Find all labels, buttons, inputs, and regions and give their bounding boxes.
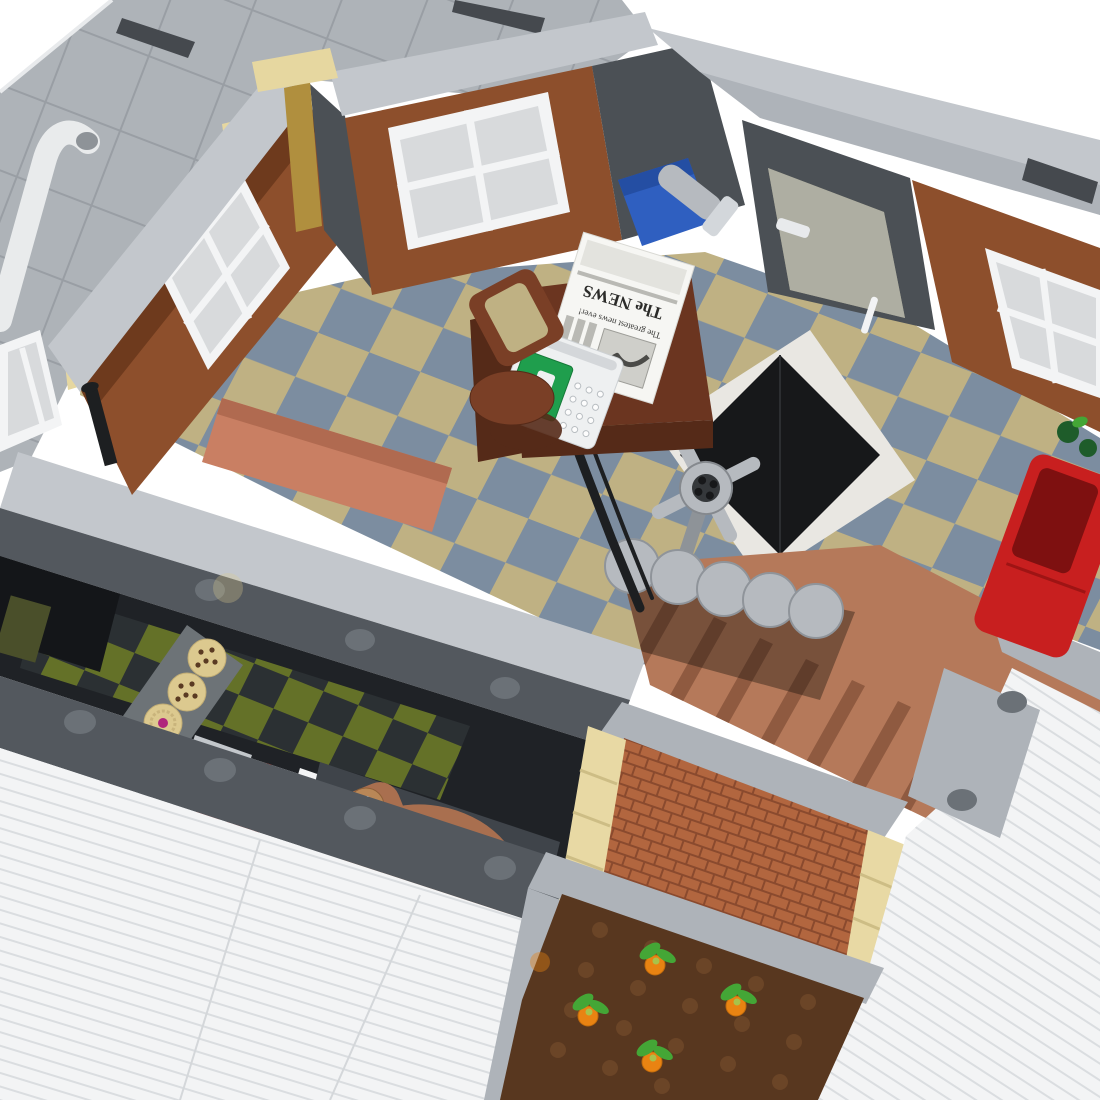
stud: [550, 1042, 566, 1058]
stud: [748, 976, 764, 992]
stud: [682, 998, 698, 1014]
stud: [947, 789, 977, 811]
chip: [212, 659, 217, 664]
curved-step: [743, 573, 797, 627]
stud: [490, 677, 520, 699]
jam-center: [158, 718, 168, 728]
chip: [178, 683, 183, 688]
chip: [175, 696, 180, 701]
stud: [345, 629, 375, 651]
cookie: [168, 673, 206, 711]
stud: [720, 1056, 736, 1072]
stud: [344, 806, 376, 830]
drain-pipe-opening: [76, 132, 98, 150]
chip: [189, 681, 194, 686]
cookie-reflection: [213, 573, 243, 603]
stud: [668, 1038, 684, 1054]
plant: [1079, 439, 1097, 457]
chocolate-chip-cookie: [168, 673, 206, 711]
chip: [209, 647, 214, 652]
chip: [198, 649, 203, 654]
curved-step: [697, 562, 751, 616]
stud: [630, 980, 646, 996]
stud: [616, 1020, 632, 1036]
carrot-stem: [734, 999, 741, 1006]
stud: [997, 691, 1027, 713]
stud: [696, 958, 712, 974]
carrot-stem: [653, 958, 660, 965]
carrot-behind-glass: [530, 952, 550, 972]
stud: [786, 1034, 802, 1050]
stud: [800, 994, 816, 1010]
curved-step: [789, 584, 843, 638]
stud: [772, 1074, 788, 1090]
chip: [203, 658, 208, 663]
chocolate-chip-cookie: [188, 639, 226, 677]
chip: [183, 692, 188, 697]
stud: [484, 856, 516, 880]
stud: [592, 922, 608, 938]
stud: [654, 1078, 670, 1094]
stud: [204, 758, 236, 782]
carrot-stem: [650, 1055, 657, 1062]
stud: [578, 962, 594, 978]
chip: [192, 693, 197, 698]
stud: [64, 710, 96, 734]
stud: [734, 1016, 750, 1032]
carrot-stem: [586, 1009, 593, 1016]
chair-seat: [470, 371, 554, 425]
render-canvas: The greatest news ever! The NEWS: [0, 0, 1100, 1100]
lego-interior-render: The greatest news ever! The NEWS: [0, 0, 1100, 1100]
cookie: [188, 639, 226, 677]
stud: [602, 1060, 618, 1076]
chip: [195, 662, 200, 667]
